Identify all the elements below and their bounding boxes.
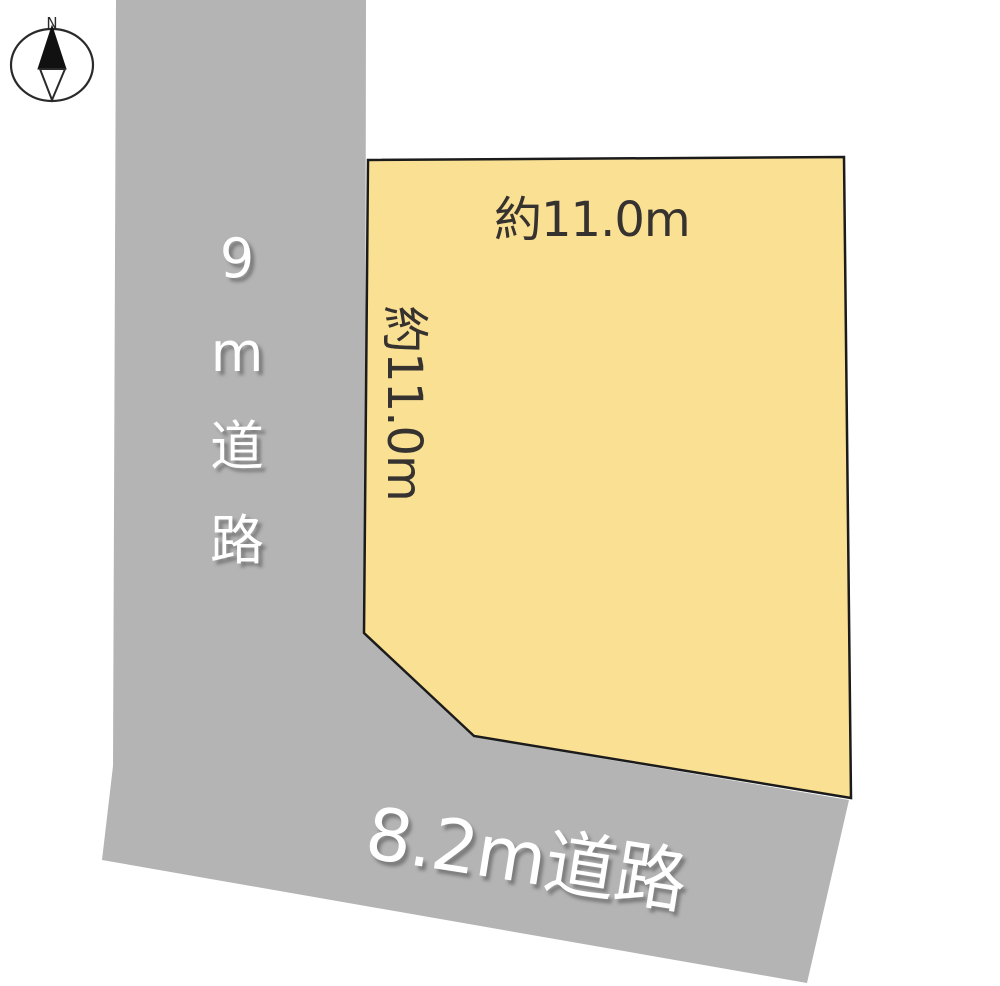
lot-left-dimension-label: 約11.0m [392,303,444,503]
west-road-label: 9m道路 [204,212,270,588]
compass-needle-north [38,26,66,69]
compass-needle-south [40,69,65,100]
compass-icon: N [11,14,93,101]
site-plan-diagram: N 9m道路 8.2m道路 約11.0m 約11.0m [0,0,1000,986]
lot-top-dimension-label: 約11.0m [494,180,690,250]
